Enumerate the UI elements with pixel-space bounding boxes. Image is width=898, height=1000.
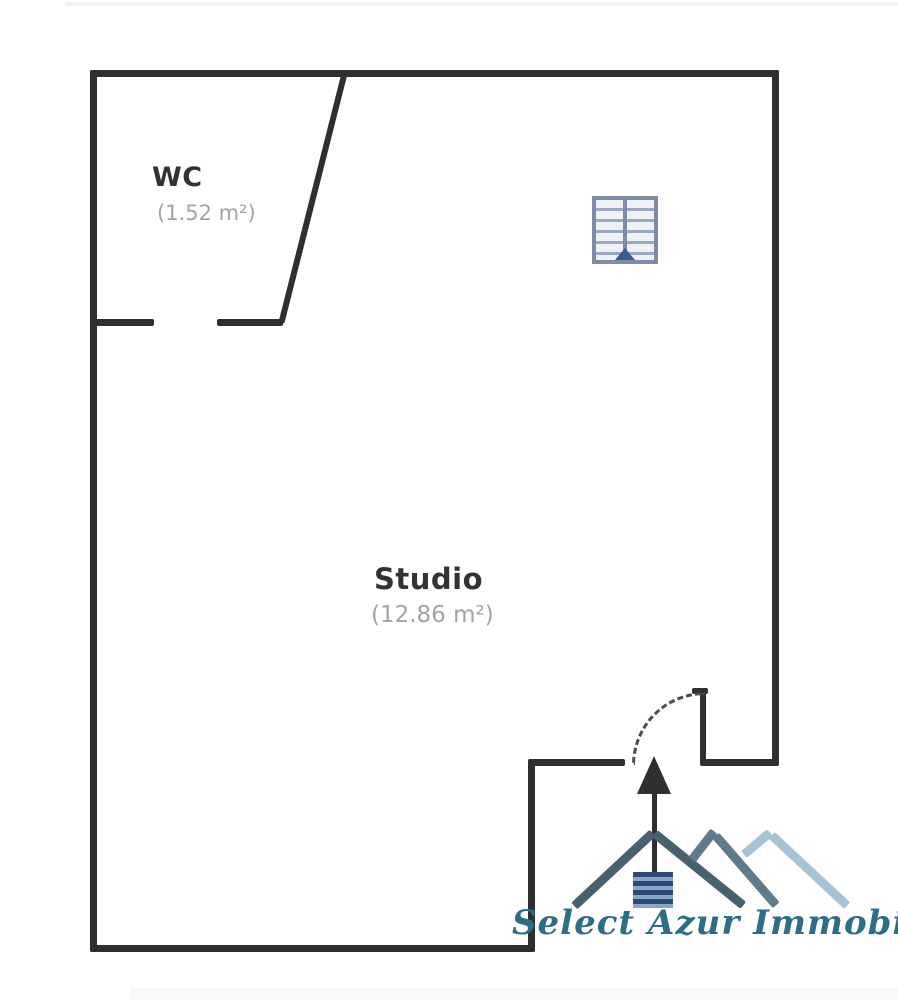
window-icon (592, 196, 658, 264)
logo-roof3-left (741, 829, 773, 858)
door-swing-arc (632, 692, 705, 765)
wall-wc-left-segment (90, 319, 154, 326)
floorplan-image: WC (1.52 m²) Studio (12.86 m²) Select Az… (0, 0, 898, 1000)
room-label-studio: Studio (374, 562, 483, 596)
page-top-divider (65, 2, 898, 6)
wall-wc-right-segment (217, 319, 283, 326)
logo-roof2-right (712, 833, 779, 908)
wall-top (90, 70, 779, 77)
logo-roof3-right (769, 832, 850, 909)
window-icon-fan (615, 248, 635, 260)
wall-wc-diagonal (278, 72, 347, 324)
room-label-wc: WC (152, 162, 203, 193)
wall-left (90, 70, 97, 952)
wall-right (772, 70, 779, 766)
room-area-studio: (12.86 m²) (371, 602, 494, 628)
room-area-wc: (1.52 m²) (157, 201, 256, 225)
wall-bottom-step-horizontal (528, 759, 625, 766)
entrance-arrow-icon (637, 756, 671, 794)
logo-text: Select Azur Immobilier (512, 903, 898, 943)
wall-bottom-right (702, 759, 779, 766)
wall-bottom (90, 945, 535, 952)
logo-roof2-left (688, 829, 717, 863)
page-bottom-divider (130, 988, 898, 1000)
